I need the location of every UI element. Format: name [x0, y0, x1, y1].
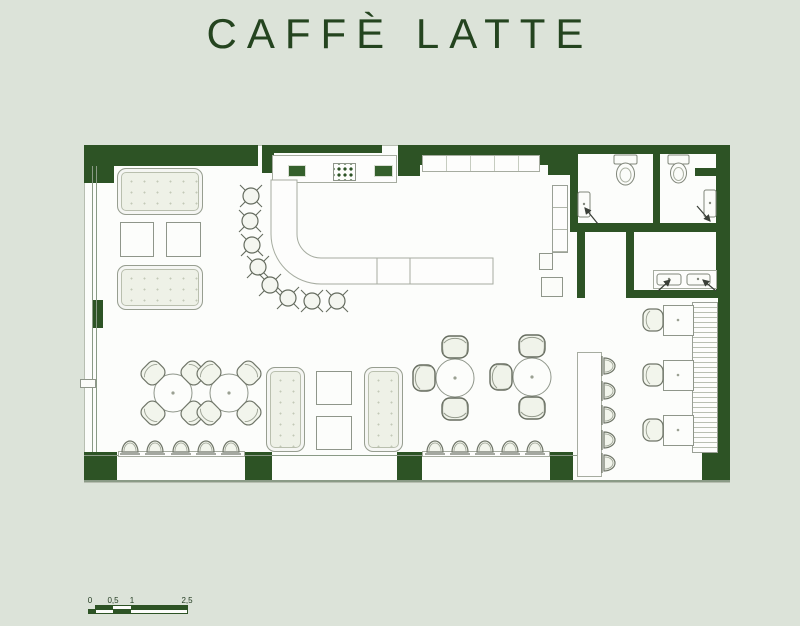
- round-table-4-dot: [530, 375, 533, 378]
- page: { "title": "CAFFÈ LATTE", "scale_bar": {…: [0, 0, 800, 626]
- round-table-3-dot: [453, 376, 456, 379]
- scale-seg-0: [88, 609, 95, 614]
- counter-stool-2: [602, 381, 615, 401]
- round-table-2-dot: [227, 391, 230, 394]
- armchair-t3-w: [413, 365, 435, 391]
- bar-stool-2: [239, 210, 261, 232]
- ledge-stool-3: [171, 441, 191, 454]
- ledge-stool-5: [221, 441, 241, 454]
- scale-seg-2: [131, 605, 188, 610]
- bar-stool-8: [326, 290, 348, 312]
- scale-seg-1: [95, 605, 113, 610]
- toilet-stall-1: [614, 155, 637, 185]
- wall-table-3-dot: [677, 429, 680, 432]
- armchair-t4-s: [519, 397, 545, 419]
- scale-label-1: 1: [130, 596, 134, 605]
- ledge-stool-1: [120, 441, 140, 454]
- bar-stool-4: [247, 256, 269, 278]
- sink-stall-1: [578, 192, 590, 217]
- plan-symbols-layer: [0, 0, 800, 626]
- chair-wall-table-2: [643, 364, 663, 386]
- scale-label-0: 0: [88, 596, 92, 605]
- ledge-stool-6: [425, 441, 445, 454]
- armchair-t4-w: [490, 364, 512, 390]
- counter-stool-5: [602, 453, 615, 473]
- ledge-stool-9: [500, 441, 520, 454]
- toilet-stall-2: [668, 155, 689, 183]
- chair-wall-table-3: [643, 419, 663, 441]
- bar-stool-1: [240, 185, 262, 207]
- bar-stool-3: [241, 234, 263, 256]
- ledge-stool-2: [145, 441, 165, 454]
- chair-wall-table-1: [643, 309, 663, 331]
- sink-stall-2: [704, 190, 716, 217]
- bar-stool-7: [301, 290, 323, 312]
- counter-stool-4: [602, 430, 615, 450]
- scale-label-05: 0,5: [107, 596, 118, 605]
- armchair-t4-n: [519, 335, 545, 357]
- armchair-t3-s: [442, 398, 468, 420]
- armchair-t3-n: [442, 336, 468, 358]
- ledge-stool-4: [196, 441, 216, 454]
- ledge-stool-7: [450, 441, 470, 454]
- wall-table-2-dot: [677, 374, 680, 377]
- scale-label-25: 2,5: [181, 596, 192, 605]
- bar-stool-6: [277, 287, 299, 309]
- counter-stool-1: [602, 356, 615, 376]
- ledge-stool-10: [525, 441, 545, 454]
- vanity-sink-left: [657, 274, 681, 285]
- wall-table-1-dot: [677, 319, 680, 322]
- ledge-stool-8: [475, 441, 495, 454]
- bar-counter: [271, 180, 493, 284]
- scale-seg-3: [113, 609, 131, 614]
- counter-stool-3: [602, 405, 615, 425]
- bar-stool-5: [259, 274, 281, 296]
- round-table-1-dot: [171, 391, 174, 394]
